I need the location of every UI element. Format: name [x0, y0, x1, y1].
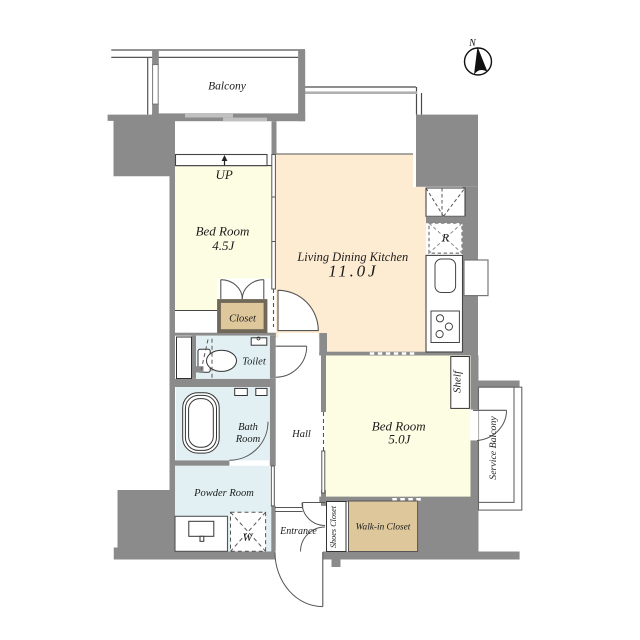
svg-text:Room: Room [235, 434, 261, 445]
svg-text:4.5J: 4.5J [212, 238, 235, 253]
svg-text:Walk-in Closet: Walk-in Closet [356, 523, 411, 533]
svg-text:Closet: Closet [229, 314, 257, 325]
svg-text:Bath: Bath [238, 422, 258, 433]
svg-text:Powder Room: Powder Room [193, 488, 254, 499]
svg-text:R: R [441, 233, 449, 245]
svg-text:Service Balcony: Service Balcony [488, 416, 499, 480]
svg-text:Hall: Hall [291, 429, 311, 440]
svg-text:Entrance: Entrance [279, 526, 317, 537]
svg-text:UP: UP [216, 167, 233, 182]
svg-text:W: W [243, 530, 254, 544]
svg-text:5.0J: 5.0J [388, 432, 411, 447]
svg-text:11.0J: 11.0J [328, 262, 378, 281]
svg-text:N: N [468, 38, 477, 49]
svg-text:Toilet: Toilet [242, 357, 267, 368]
svg-text:Shoes Closet: Shoes Closet [329, 505, 338, 548]
svg-text:Balcony: Balcony [208, 81, 247, 93]
svg-text:Shelf: Shelf [452, 369, 464, 393]
svg-text:Bed Room: Bed Room [196, 223, 250, 238]
